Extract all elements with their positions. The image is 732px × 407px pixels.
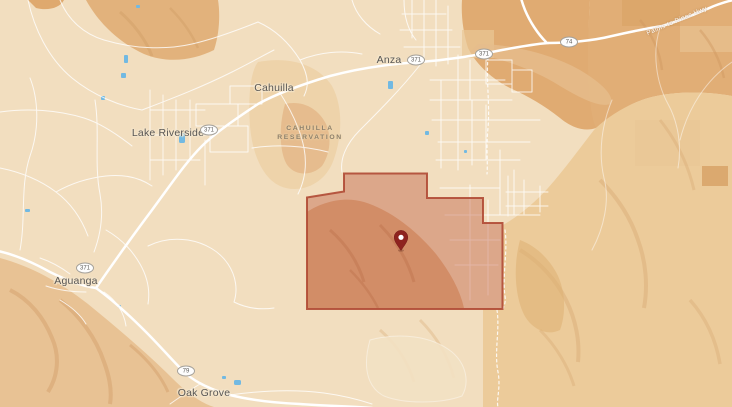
route-shield-text: 371 xyxy=(479,51,489,57)
route-shield-79: 79 xyxy=(177,366,195,377)
map-canvas[interactable]: Anza Cahuilla Lake Riverside Aguanga Oak… xyxy=(0,0,732,407)
route-shield-371: 371 xyxy=(200,125,218,136)
route-shield-text: 371 xyxy=(80,265,90,271)
route-shield-74: 74 xyxy=(560,37,578,48)
route-shield-371: 371 xyxy=(407,55,425,66)
pin-dot xyxy=(398,235,403,240)
route-shield-text: 371 xyxy=(204,127,214,133)
route-shield-text: 79 xyxy=(183,368,190,374)
route-shield-371: 371 xyxy=(475,49,493,60)
route-shield-text: 74 xyxy=(566,39,573,45)
route-shield-text: 371 xyxy=(411,57,421,63)
map-graphics xyxy=(0,0,732,407)
route-shield-371: 371 xyxy=(76,263,94,274)
